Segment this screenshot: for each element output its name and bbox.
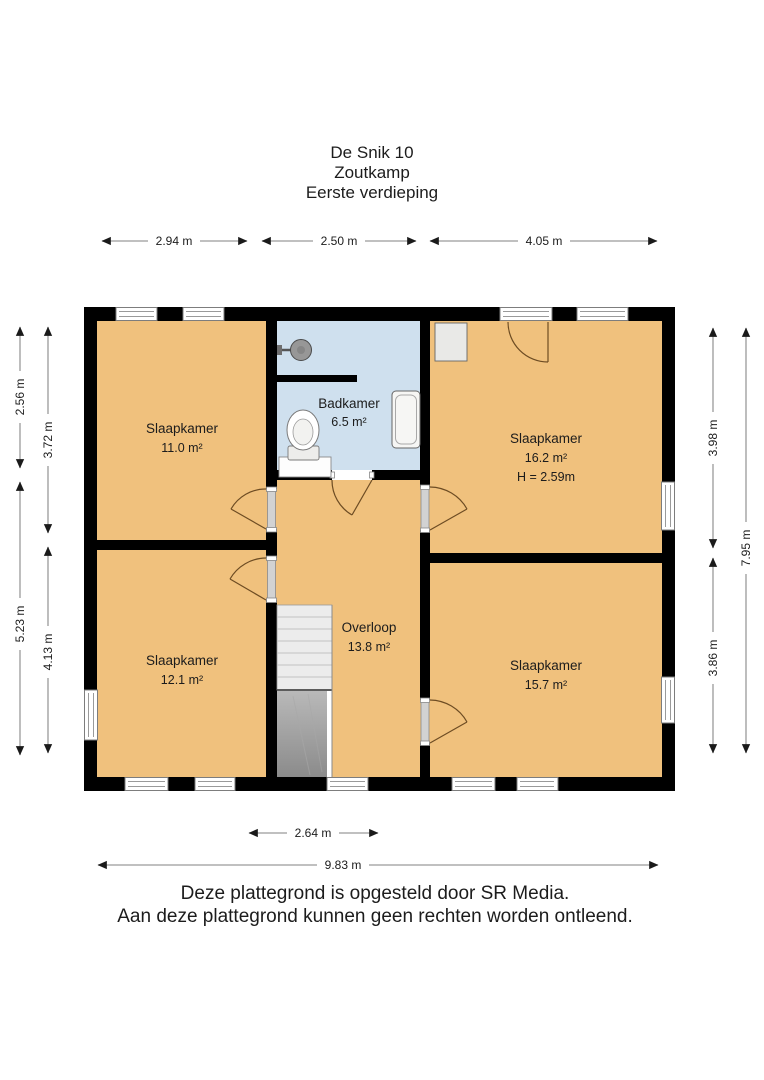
stair-ramp bbox=[277, 691, 327, 777]
window bbox=[662, 482, 675, 530]
door-jamb-cap bbox=[267, 556, 277, 561]
room-area: 6.5 m² bbox=[331, 415, 366, 429]
window bbox=[452, 778, 495, 791]
footer-line-2: Aan deze plattegrond kunnen geen rechten… bbox=[117, 906, 633, 927]
room-area: 11.0 m² bbox=[161, 441, 202, 455]
door-slab bbox=[268, 559, 276, 599]
room-ceiling-height: H = 2.59m bbox=[517, 470, 575, 484]
wall-right-rooms-divider bbox=[420, 553, 675, 563]
window bbox=[500, 308, 552, 321]
dim-label-top-2: 2.50 m bbox=[321, 234, 358, 248]
floor-plan: De Snik 10 Zoutkamp Eerste verdieping bbox=[0, 0, 764, 1080]
door-slab bbox=[421, 701, 429, 742]
wall-left-rooms-divider bbox=[84, 540, 277, 550]
room-name: Slaapkamer bbox=[510, 658, 583, 673]
dim-label-left-outer-1: 2.56 m bbox=[13, 379, 27, 416]
title-city: Zoutkamp bbox=[334, 163, 410, 182]
room-area: 16.2 m² bbox=[525, 451, 567, 465]
door-slab bbox=[268, 490, 276, 528]
dim-label-right-inner-2: 3.86 m bbox=[706, 640, 720, 677]
dim-label-left-inner-2: 4.13 m bbox=[41, 634, 55, 671]
bathtub-icon bbox=[392, 391, 420, 448]
dim-label-top-3: 4.05 m bbox=[526, 234, 563, 248]
room-name: Overloop bbox=[342, 620, 397, 635]
footer-line-1: Deze plattegrond is opgesteld door SR Me… bbox=[181, 883, 570, 904]
window bbox=[517, 778, 558, 791]
window bbox=[195, 778, 235, 791]
dim-label-bottom-inner: 2.64 m bbox=[295, 826, 332, 840]
door-jamb-cap bbox=[421, 698, 430, 703]
room-name: Badkamer bbox=[318, 396, 380, 411]
door-jamb-cap bbox=[267, 487, 277, 492]
stair-ramp-gap bbox=[327, 691, 332, 777]
dim-label-right-outer: 7.95 m bbox=[739, 530, 753, 567]
title-address: De Snik 10 bbox=[330, 143, 413, 162]
door-jamb-cap bbox=[267, 598, 277, 603]
dim-label-left-inner-1: 3.72 m bbox=[41, 422, 55, 459]
room-area: 15.7 m² bbox=[525, 678, 567, 692]
room-area: 13.8 m² bbox=[348, 640, 390, 654]
dim-label-top-1: 2.94 m bbox=[156, 234, 193, 248]
window bbox=[125, 778, 168, 791]
dim-label-bottom-outer: 9.83 m bbox=[325, 858, 362, 872]
door-jamb-cap bbox=[421, 528, 430, 533]
dim-label-right-inner-1: 3.98 m bbox=[706, 420, 720, 457]
window bbox=[116, 308, 157, 321]
door-jamb-cap bbox=[421, 485, 430, 490]
closet-icon bbox=[435, 323, 467, 361]
window bbox=[577, 308, 628, 321]
floorplan-page: De Snik 10 Zoutkamp Eerste verdieping bbox=[0, 0, 764, 1080]
door-jamb-cap bbox=[421, 741, 430, 746]
title-floor: Eerste verdieping bbox=[306, 183, 438, 202]
door-slab bbox=[421, 488, 429, 529]
window bbox=[662, 677, 675, 723]
room-name: Slaapkamer bbox=[146, 421, 219, 436]
window bbox=[183, 308, 224, 321]
room-name: Slaapkamer bbox=[510, 431, 583, 446]
wall-shower-screen bbox=[277, 375, 357, 382]
opening-badkamer bbox=[332, 470, 372, 480]
room-area: 12.1 m² bbox=[161, 673, 203, 687]
dim-label-left-outer-2: 5.23 m bbox=[13, 606, 27, 643]
door-jamb-cap bbox=[370, 472, 375, 478]
window bbox=[327, 778, 368, 791]
window bbox=[85, 690, 98, 740]
room-name: Slaapkamer bbox=[146, 653, 219, 668]
door-jamb-cap bbox=[267, 528, 277, 533]
staircase bbox=[277, 605, 332, 777]
